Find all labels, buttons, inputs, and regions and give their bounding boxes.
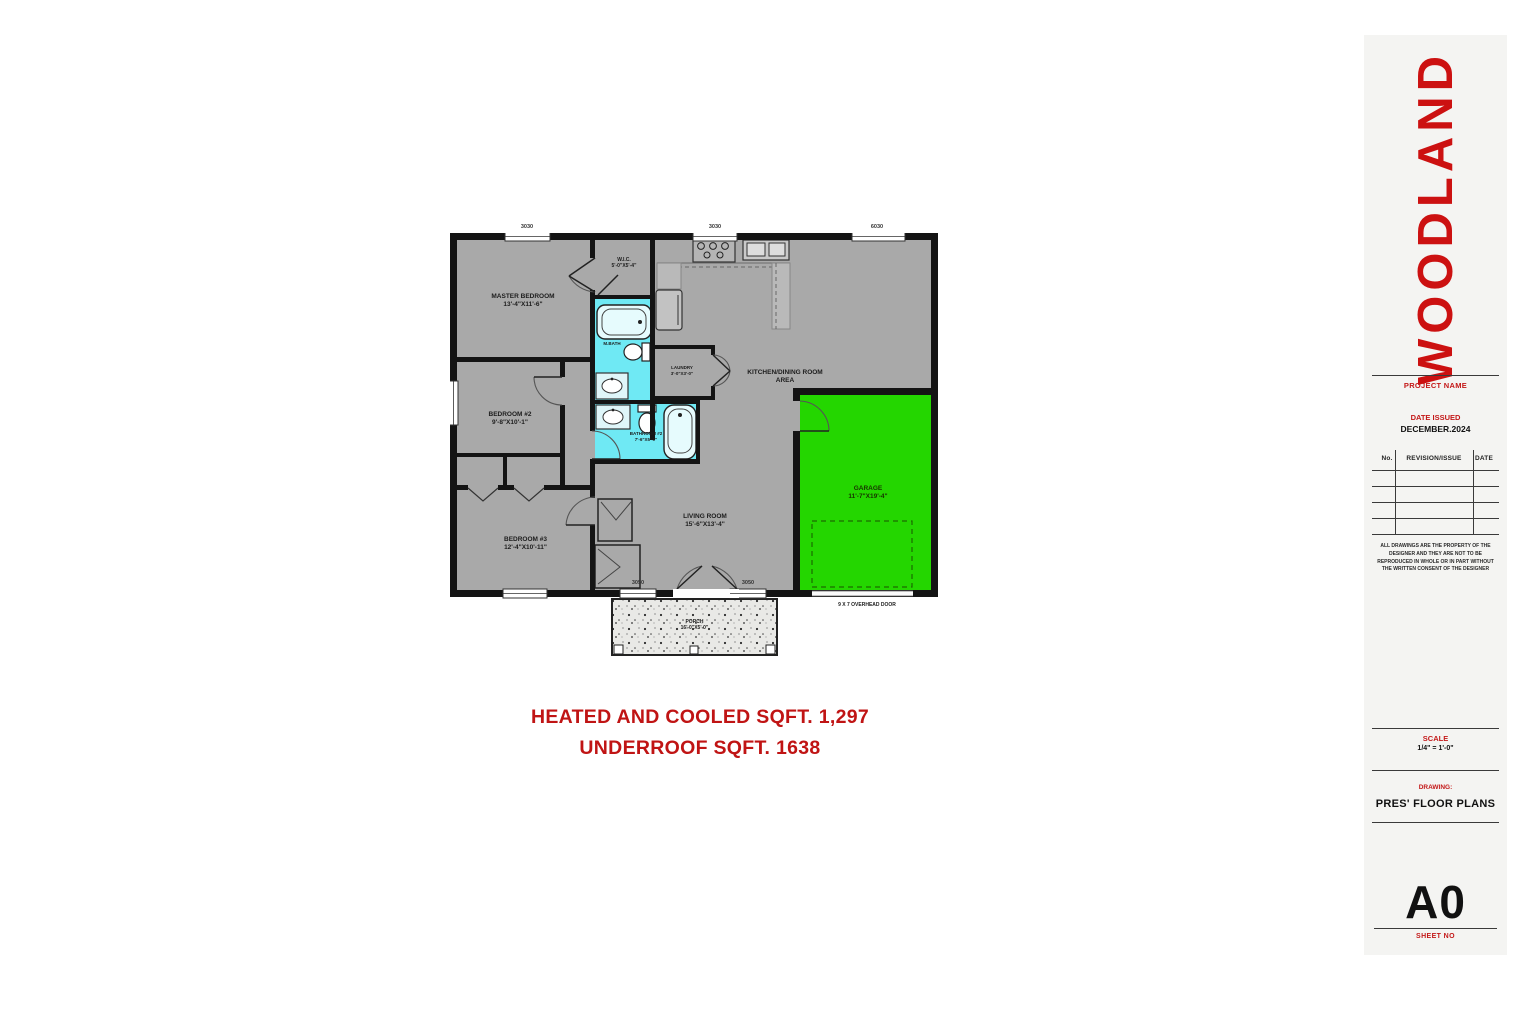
heated-cooled-sqft: HEATED AND COOLED SQFT. 1,297 xyxy=(420,702,980,733)
date-issued-value: DECEMBER.2024 xyxy=(1364,424,1507,434)
room-label-master-bedroom: MASTER BEDROOM13'-4"X11'-6" xyxy=(478,293,568,309)
drawing-title: PRES' FLOOR PLANS xyxy=(1364,798,1507,810)
copyright-disclaimer: ALL DRAWINGS ARE THE PROPERTY OF THE DES… xyxy=(1374,543,1497,574)
master-sink xyxy=(602,379,622,393)
floor-plan: MASTER BEDROOM13'-4"X11'-6" W.I.C.5'-0"X… xyxy=(450,233,938,665)
room-label-garage: GARAGE11'-7"X19'-4" xyxy=(818,485,918,501)
title-block: WOODLAND PROJECT NAME DATE ISSUED DECEMB… xyxy=(1364,35,1507,955)
bath2-sink xyxy=(603,410,623,424)
scale-value: 1/4" = 1'-0" xyxy=(1364,745,1507,752)
rev-col-revision: REVISION/ISSUE xyxy=(1402,455,1466,462)
sheet-number: A0 xyxy=(1364,875,1507,929)
window-label: 3030 xyxy=(690,224,740,230)
window-label: 3030 xyxy=(502,224,552,230)
room-label-laundry: LAUNDRY3'-0"X3'-0" xyxy=(654,365,710,376)
master-bathtub xyxy=(597,305,651,339)
sqft-summary: HEATED AND COOLED SQFT. 1,297 UNDERROOF … xyxy=(420,702,980,764)
underroof-sqft: UNDERROOF SQFT. 1638 xyxy=(420,733,980,764)
room-label-bedroom2: BEDROOM #29'-8"X10'-1" xyxy=(465,411,555,427)
rev-col-date: DATE xyxy=(1466,455,1502,462)
room-label-bathroom2: BATHROOM #27'-6"X5'-0" xyxy=(602,431,690,442)
room-label-kitchen: KITCHEN/DINING ROOMAREA xyxy=(735,369,835,385)
room-label-wic: W.I.C.5'-0"X5'-4" xyxy=(600,257,648,270)
window-label: 3050 xyxy=(718,580,778,586)
scale-label: SCALE xyxy=(1364,734,1507,743)
brand-title: WOODLAND xyxy=(1364,53,1507,383)
project-name-label: PROJECT NAME xyxy=(1364,381,1507,390)
room-label-master-bath: M.BATH xyxy=(594,341,630,347)
room-label-living-room: LIVING ROOM15'-6"X13'-4" xyxy=(655,513,755,529)
overhead-door-note: 9 X 7 OVERHEAD DOOR xyxy=(793,602,941,608)
sheet-no-label: SHEET NO xyxy=(1364,933,1507,940)
window-label: 3050 xyxy=(608,580,668,586)
room-label-porch: PORCH16'-0"X5'-0" xyxy=(612,619,777,632)
room-label-bedroom3: BEDROOM #312'-4"X10'-11" xyxy=(478,536,573,552)
date-issued-label: DATE ISSUED xyxy=(1364,413,1507,422)
rev-col-no: No. xyxy=(1372,455,1402,462)
window-label: 6030 xyxy=(848,224,906,230)
drawing-label: DRAWING: xyxy=(1364,784,1507,791)
